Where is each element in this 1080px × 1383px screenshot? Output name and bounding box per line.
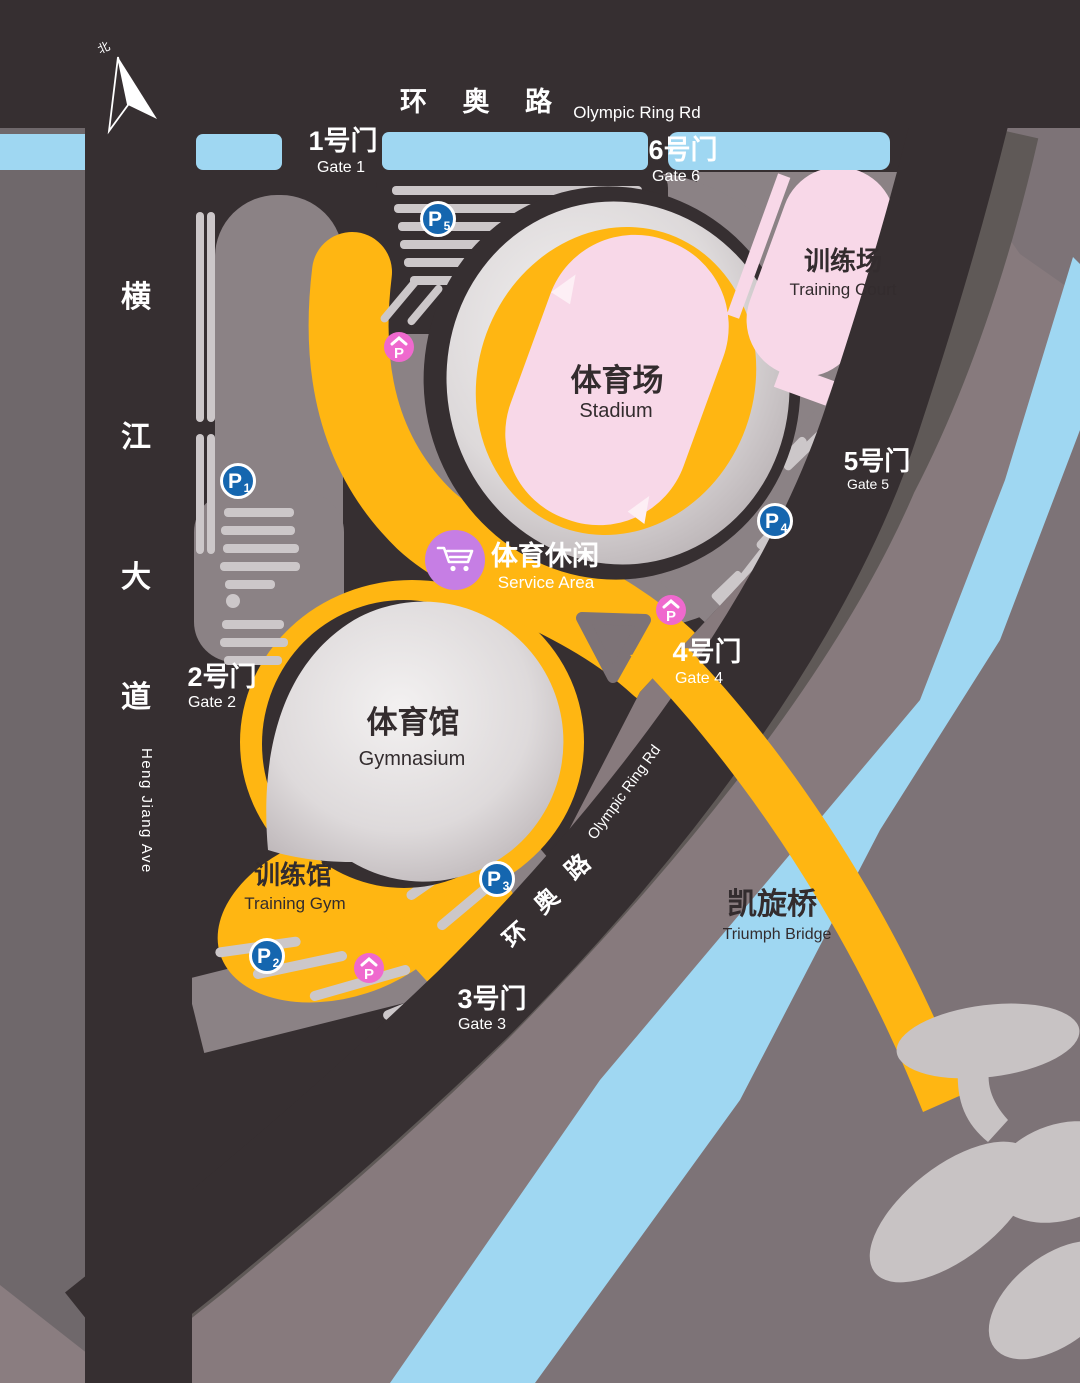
gate-en: Gate 3: [458, 1016, 506, 1033]
canal-segment: [196, 134, 282, 170]
parking-letter: P: [765, 510, 779, 533]
cart-wheel: [463, 566, 468, 571]
parking-letter: P: [364, 966, 374, 983]
service-area-label-zh: 体育休闲: [491, 540, 599, 571]
parking-bar: [224, 508, 294, 517]
parking-bar: [222, 620, 284, 629]
parking-icon-p3: P 3: [481, 863, 514, 896]
parking-bar: [223, 544, 299, 553]
covered-parking-icon: P: [656, 595, 686, 625]
gate-en: Gate 4: [675, 670, 723, 687]
gate-en: Gate 1: [317, 159, 365, 176]
parking-letter: P: [428, 208, 442, 231]
parking-letter: P: [257, 945, 271, 968]
map-canvas: 北 环 奥 路 Olympic Ring Rd 横 江 大 道 Heng Jia…: [0, 0, 1080, 1383]
road-label-hengjiang-char: 横: [121, 281, 151, 314]
parking-bar: [225, 580, 275, 589]
parking-icon-p4: P 4: [759, 505, 792, 538]
parking-bar: [226, 594, 240, 608]
block-west: [0, 0, 85, 1383]
parking-icon-p5: P 5: [422, 203, 455, 236]
canal-segment: [382, 132, 648, 170]
covered-parking-icon: P: [384, 332, 414, 362]
parking-bar: [196, 434, 204, 554]
parking-bar: [207, 212, 215, 422]
road-label-hengjiang-en: Heng Jiang Ave: [138, 748, 155, 874]
parking-letter: P: [487, 868, 501, 891]
parking-letter: P: [228, 470, 242, 493]
parking-icon-p2: P 2: [251, 940, 284, 973]
parking-bar: [220, 638, 288, 647]
training-court-label-zh: 训练场: [804, 246, 882, 276]
parking-number: 1: [244, 481, 251, 495]
gate-zh: 4号门: [672, 637, 741, 667]
parking-number: 4: [781, 521, 788, 535]
gate-zh: 5号门: [844, 446, 910, 476]
parking-bar: [196, 212, 204, 422]
parking-bar: [220, 562, 300, 571]
road-label-hengjiang-char: 大: [121, 561, 151, 594]
training-court-label-en: Training Court: [789, 280, 896, 299]
gate-zh: 2号门: [187, 662, 256, 692]
gate-en: Gate 6: [652, 168, 700, 185]
parking-number: 2: [273, 956, 280, 970]
service-area-circle: [425, 530, 485, 590]
gymnasium-label-zh: 体育馆: [367, 705, 460, 740]
gate-zh: 3号门: [457, 984, 526, 1014]
road-label-olympic-top-zh: 环 奥 路: [400, 86, 566, 117]
road-label-olympic-top-en: Olympic Ring Rd: [573, 103, 701, 122]
gate-zh: 6号门: [648, 135, 717, 165]
gate-zh: 1号门: [308, 126, 377, 156]
road-label-hengjiang-char: 道: [121, 681, 151, 714]
parking-letter: P: [394, 345, 404, 362]
cart-wheel: [450, 566, 455, 571]
gymnasium-label-en: Gymnasium: [359, 748, 466, 770]
parking-number: 5: [444, 219, 451, 233]
training-gym-label-zh: 训练馆: [254, 860, 332, 890]
stadium-label-zh: 体育场: [571, 363, 664, 398]
parking-letter: P: [666, 608, 676, 625]
stadium-label-en: Stadium: [579, 400, 652, 422]
canal-segment: [0, 134, 85, 170]
parking-bar: [221, 526, 295, 535]
gate-en: Gate 5: [847, 476, 889, 492]
gate-en: Gate 2: [188, 694, 236, 711]
sports-park-map: 北 环 奥 路 Olympic Ring Rd 横 江 大 道 Heng Jia…: [0, 0, 1080, 1383]
parking-bar: [207, 434, 215, 554]
parking-icon-p1: P 1: [222, 465, 255, 498]
road-label-hengjiang-char: 江: [121, 421, 151, 454]
bridge-label-en: Triumph Bridge: [723, 926, 832, 943]
training-gym-label-en: Training Gym: [244, 894, 345, 913]
parking-number: 3: [503, 879, 510, 893]
bridge-label-zh: 凯旋桥: [727, 888, 817, 921]
covered-parking-icon: P: [354, 953, 384, 983]
service-area-label-en: Service Area: [498, 573, 595, 592]
